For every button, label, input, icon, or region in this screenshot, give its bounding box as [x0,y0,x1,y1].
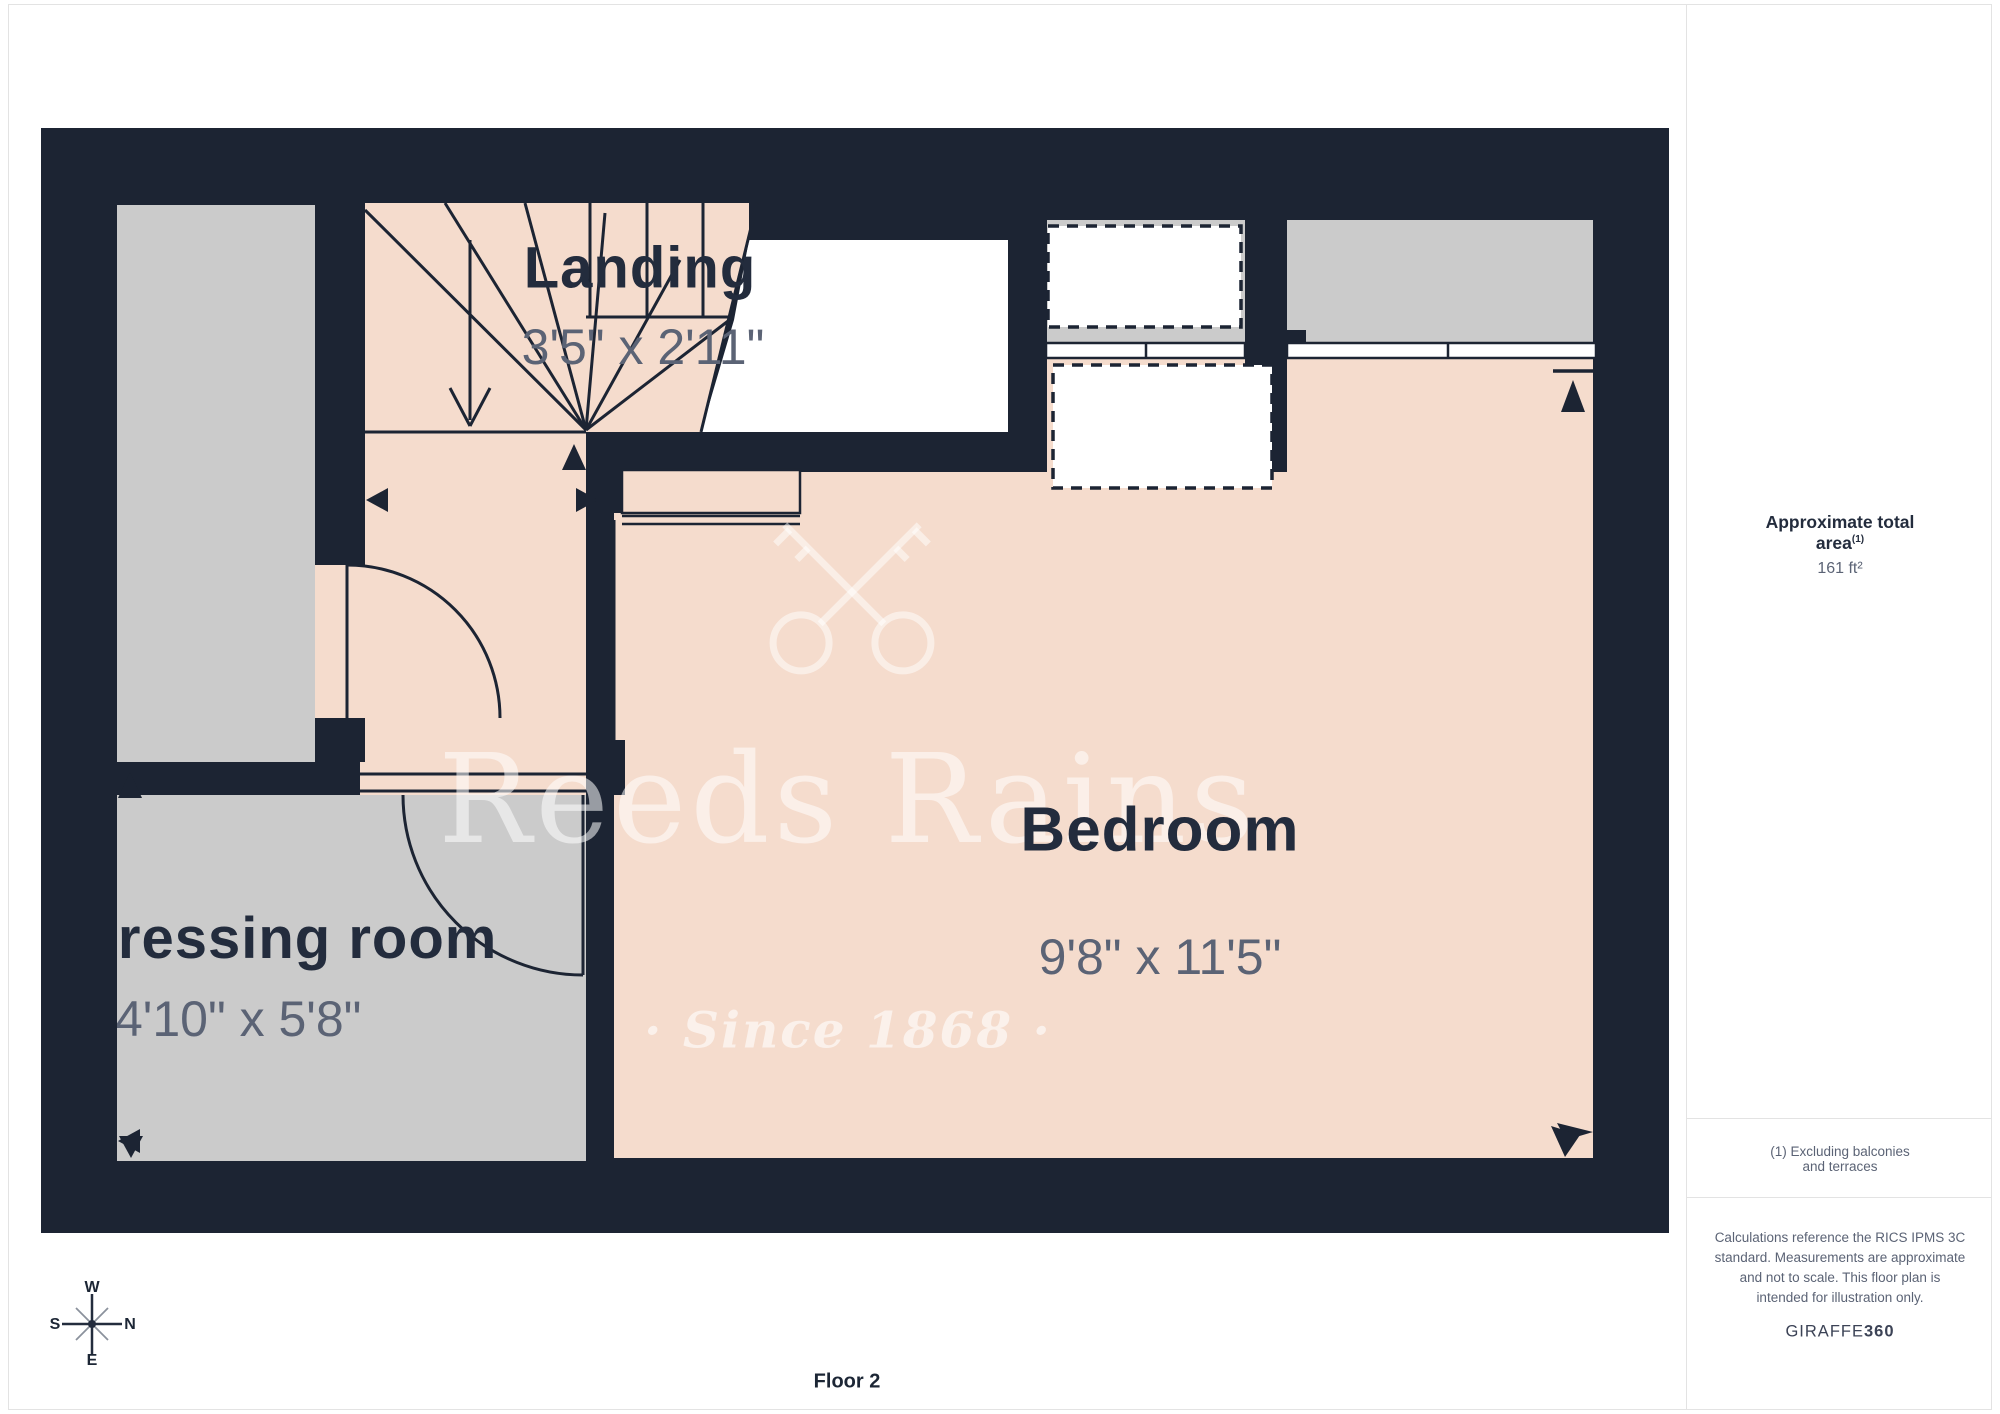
disclaimer-text: Calculations reference the RICS IPMS 3C … [1714,1228,1966,1308]
landing-label: Landing [524,235,757,302]
sidebar-separator-2 [1687,1197,1991,1198]
skylight-box-2 [1053,365,1272,488]
floorplan-drawing [0,0,2000,1414]
landing-dimensions: 3'5" x 2'11" [522,318,765,376]
storage-room-floor [117,205,315,762]
sidebar-divider [1686,4,1687,1409]
window-1 [1046,343,1245,358]
dressing-room-dimensions: 4'10" x 5'8" [117,990,361,1048]
compass-icon [62,1294,122,1354]
giraffe360-logo-name: GIRAFFE [1785,1323,1864,1341]
watermark-since-text: · Since 1868 · [644,1001,1052,1060]
window-bay2-sill [1287,220,1605,343]
compass-east-label: E [87,1352,98,1370]
bedroom-doorway-recess [622,470,800,513]
footnote-text: (1) Excluding balconies and terraces [1760,1144,1920,1174]
bedroom-label: Bedroom [1020,795,1299,866]
skylight-box-1 [1048,226,1241,327]
storage-doorway-floor [315,565,365,718]
sidebar-separator-1 [1687,1118,1991,1119]
floor-number-label: Floor 2 [814,1371,881,1394]
giraffe360-logo-suffix: 360 [1864,1323,1895,1341]
compass-west-label: W [84,1279,99,1297]
total-area-footnote-ref: (1) [1852,534,1864,545]
compass-north-label: N [124,1316,136,1334]
dressing-room-label-area: Dressing room 4'10" x 5'8" [117,795,588,1161]
giraffe360-logo: GIRAFFE360 [1785,1323,1894,1342]
total-area-title: Approximate total area(1) [1760,512,1920,554]
floorplan-page: Reeds Rains · Since 1868 · Landing 3'5" … [0,0,2000,1414]
compass-south-label: S [50,1316,61,1334]
window-2 [1287,343,1596,358]
bedroom-floor-bay2 [1287,358,1596,472]
dressing-room-label: Dressing room [117,905,497,972]
bedroom-dimensions: 9'8" x 11'5" [1039,928,1282,986]
total-area-value: 161 ft² [1817,560,1862,578]
total-area-title-text: Approximate total area [1766,512,1915,553]
hall-floor [365,432,586,770]
